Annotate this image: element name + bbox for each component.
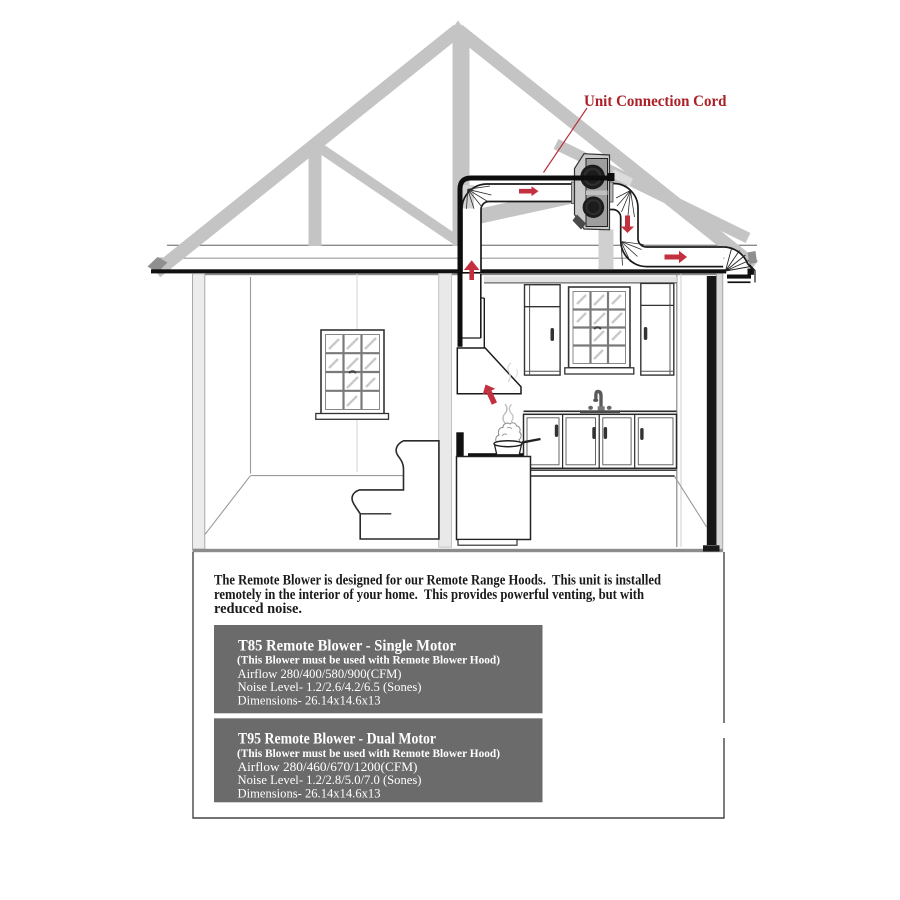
svg-text:(This Blower must be used with: (This Blower must be used with Remote Bl… bbox=[237, 653, 500, 667]
svg-text:Dimensions- 26.14x14.6x13: Dimensions- 26.14x14.6x13 bbox=[238, 786, 381, 801]
svg-text:Dimensions- 26.14x14.6x13: Dimensions- 26.14x14.6x13 bbox=[238, 692, 381, 707]
svg-text:Unit Connection Cord: Unit Connection Cord bbox=[584, 93, 727, 110]
svg-text:reduced noise.: reduced noise. bbox=[214, 601, 302, 617]
svg-text:(This Blower must be used with: (This Blower must be used with Remote Bl… bbox=[237, 746, 500, 760]
